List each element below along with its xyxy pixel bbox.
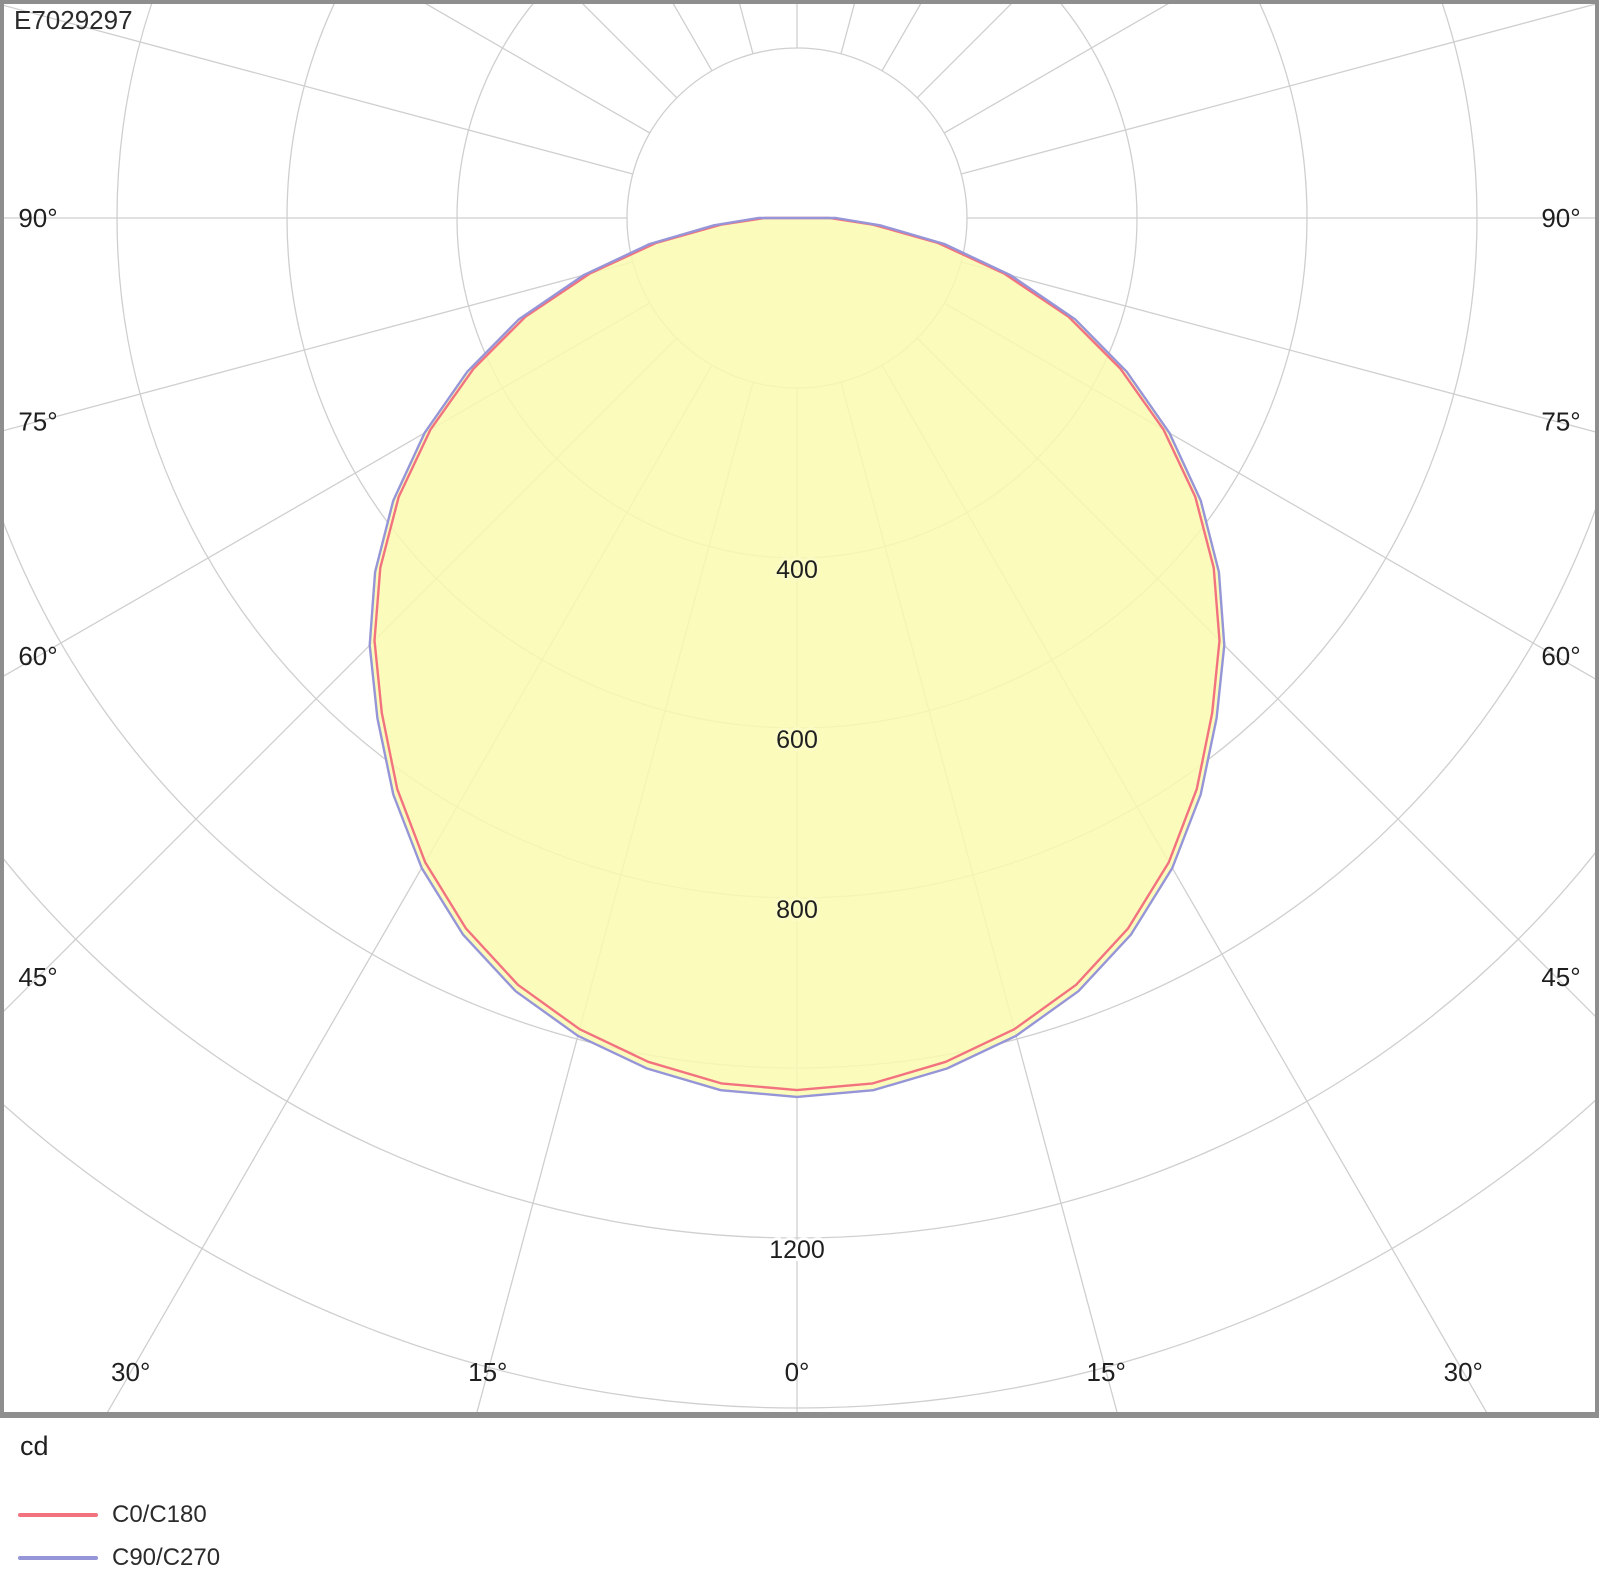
distribution-fill: [370, 218, 1225, 1097]
angle-label-bottom--15: 15°: [468, 1357, 507, 1387]
ring-label-800: 800: [776, 896, 818, 924]
angle-label-left-45: 45°: [18, 962, 57, 992]
legend-swatch-c0-c180: [18, 1513, 98, 1517]
ring-label-600: 600: [776, 726, 818, 754]
legend-label-c0-c180: C0/C180: [112, 1501, 207, 1529]
legend-label-c90-c270: C90/C270: [112, 1544, 220, 1572]
angle-label-bottom-30: 30°: [1444, 1357, 1483, 1387]
plot-title: E7029297: [14, 5, 133, 36]
legend-swatch-c90-c270: [18, 1556, 98, 1560]
ring-label-400: 400: [776, 556, 818, 584]
angle-label-bottom-0: 0°: [785, 1357, 810, 1387]
polar-plot-frame: 400600800120090°90°75°75°60°60°45°45°30°…: [0, 0, 1599, 1418]
unit-label: cd: [20, 1431, 49, 1462]
angle-label-right-90: 90°: [1541, 203, 1580, 233]
polar-diagram: 400600800120090°90°75°75°60°60°45°45°30°…: [4, 4, 1595, 1412]
angle-label-left-90: 90°: [18, 203, 57, 233]
angle-label-left-75: 75°: [18, 406, 57, 436]
angle-label-right-60: 60°: [1541, 641, 1580, 671]
angle-label-bottom-15: 15°: [1087, 1357, 1126, 1387]
angle-label-bottom--30: 30°: [111, 1357, 150, 1387]
angle-label-left-60: 60°: [18, 641, 57, 671]
angle-label-right-45: 45°: [1541, 962, 1580, 992]
ring-label-1200: 1200: [769, 1236, 825, 1264]
angle-label-right-75: 75°: [1541, 406, 1580, 436]
